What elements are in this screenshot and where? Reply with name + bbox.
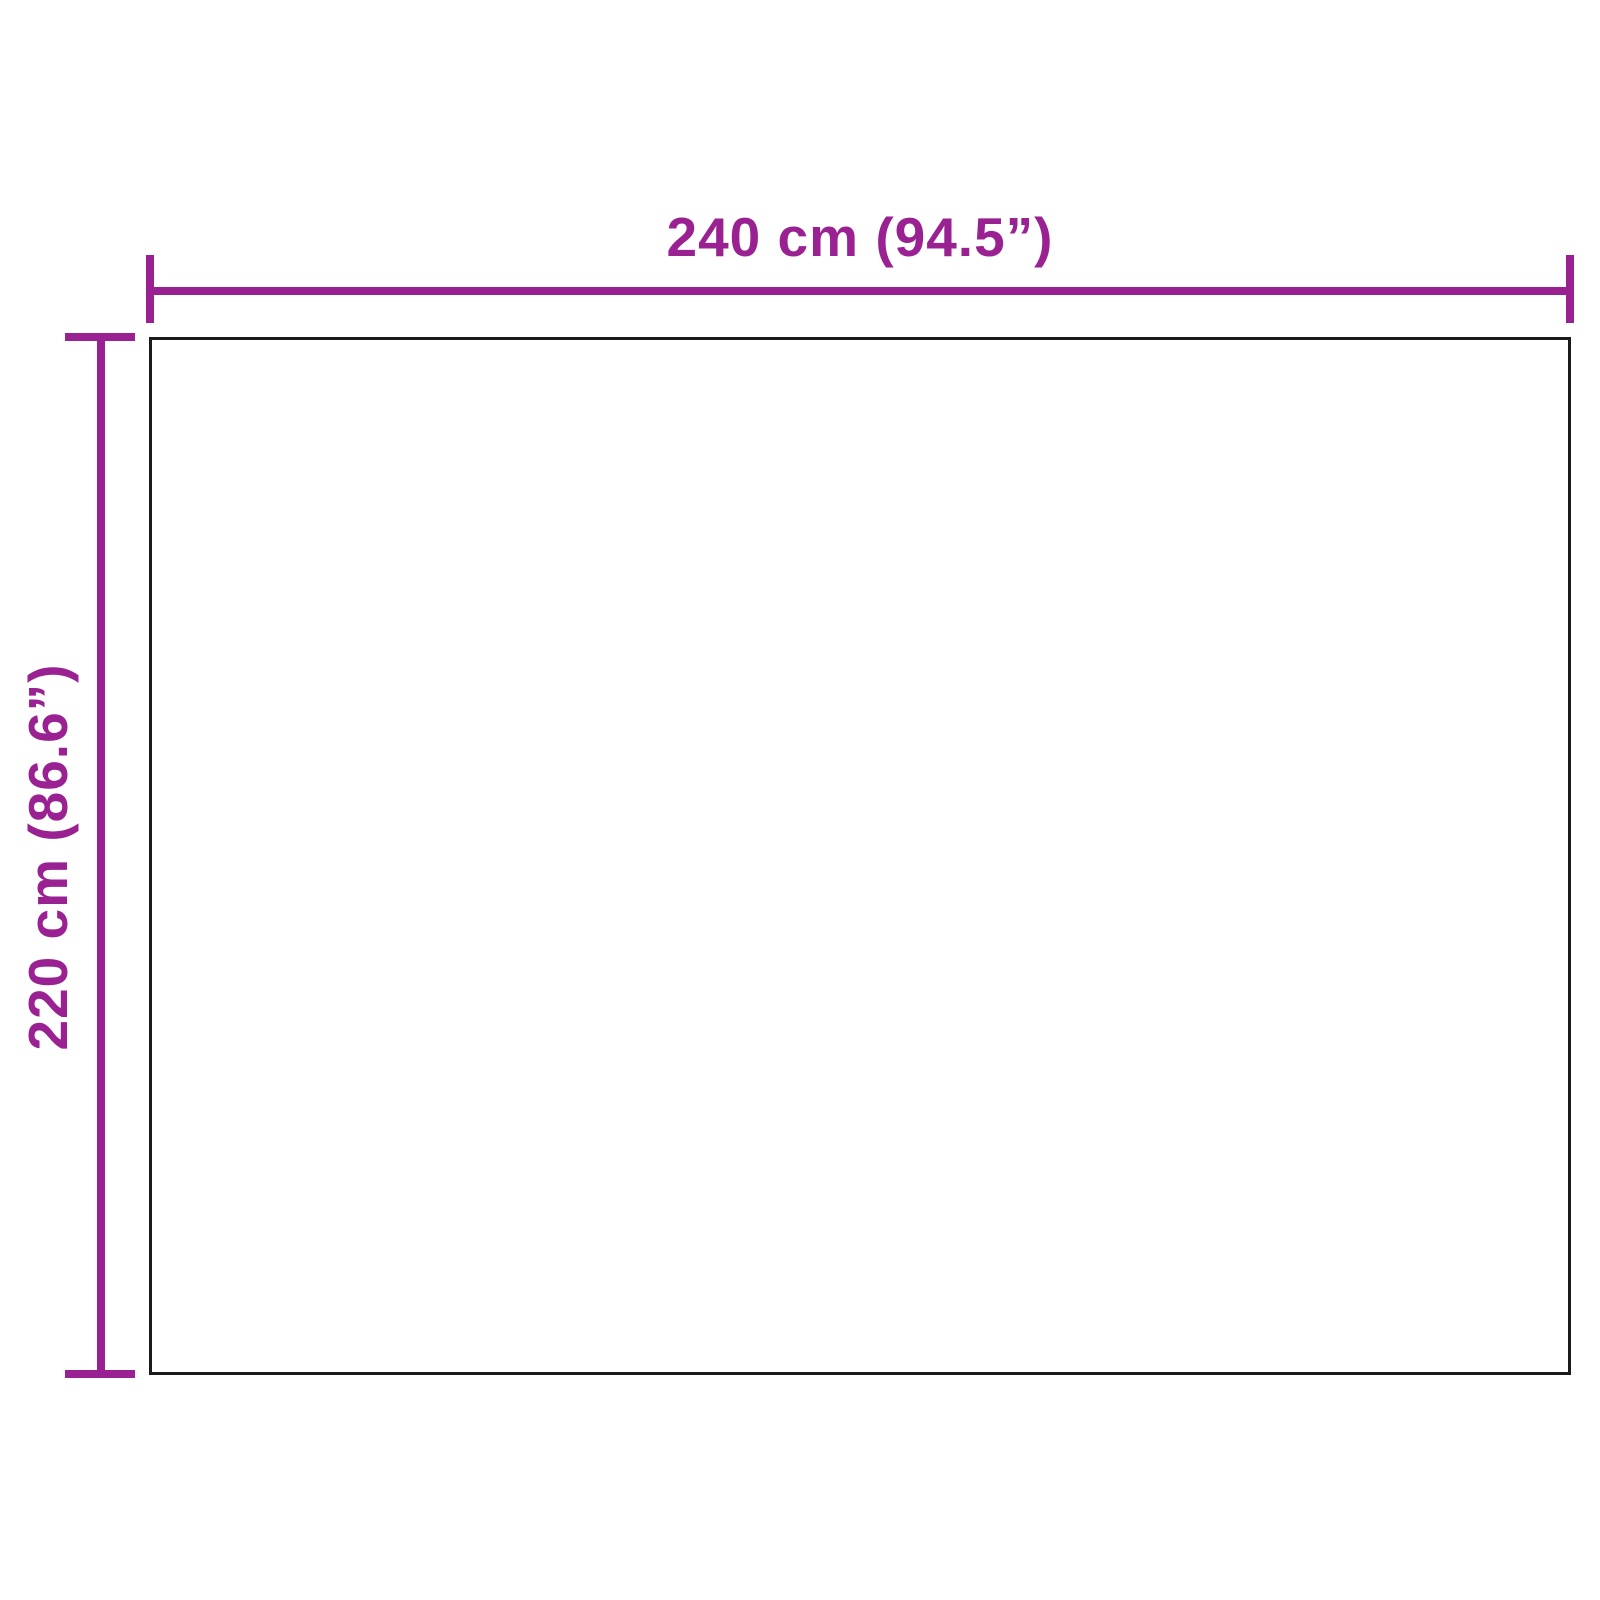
height-dimension-label: 220 cm (86.6”) bbox=[16, 664, 80, 1051]
width-dimension-end-tick-right bbox=[1566, 255, 1574, 323]
width-dimension-line-bar bbox=[146, 287, 1574, 295]
height-dimension-end-cap-bottom bbox=[65, 1370, 135, 1378]
width-dimension-label: 240 cm (94.5”) bbox=[667, 205, 1054, 269]
product-outline-rectangle bbox=[149, 337, 1571, 1375]
height-dimension-line-bar bbox=[97, 333, 105, 1378]
dimension-diagram: 240 cm (94.5”) 220 cm (86.6”) bbox=[0, 0, 1600, 1600]
